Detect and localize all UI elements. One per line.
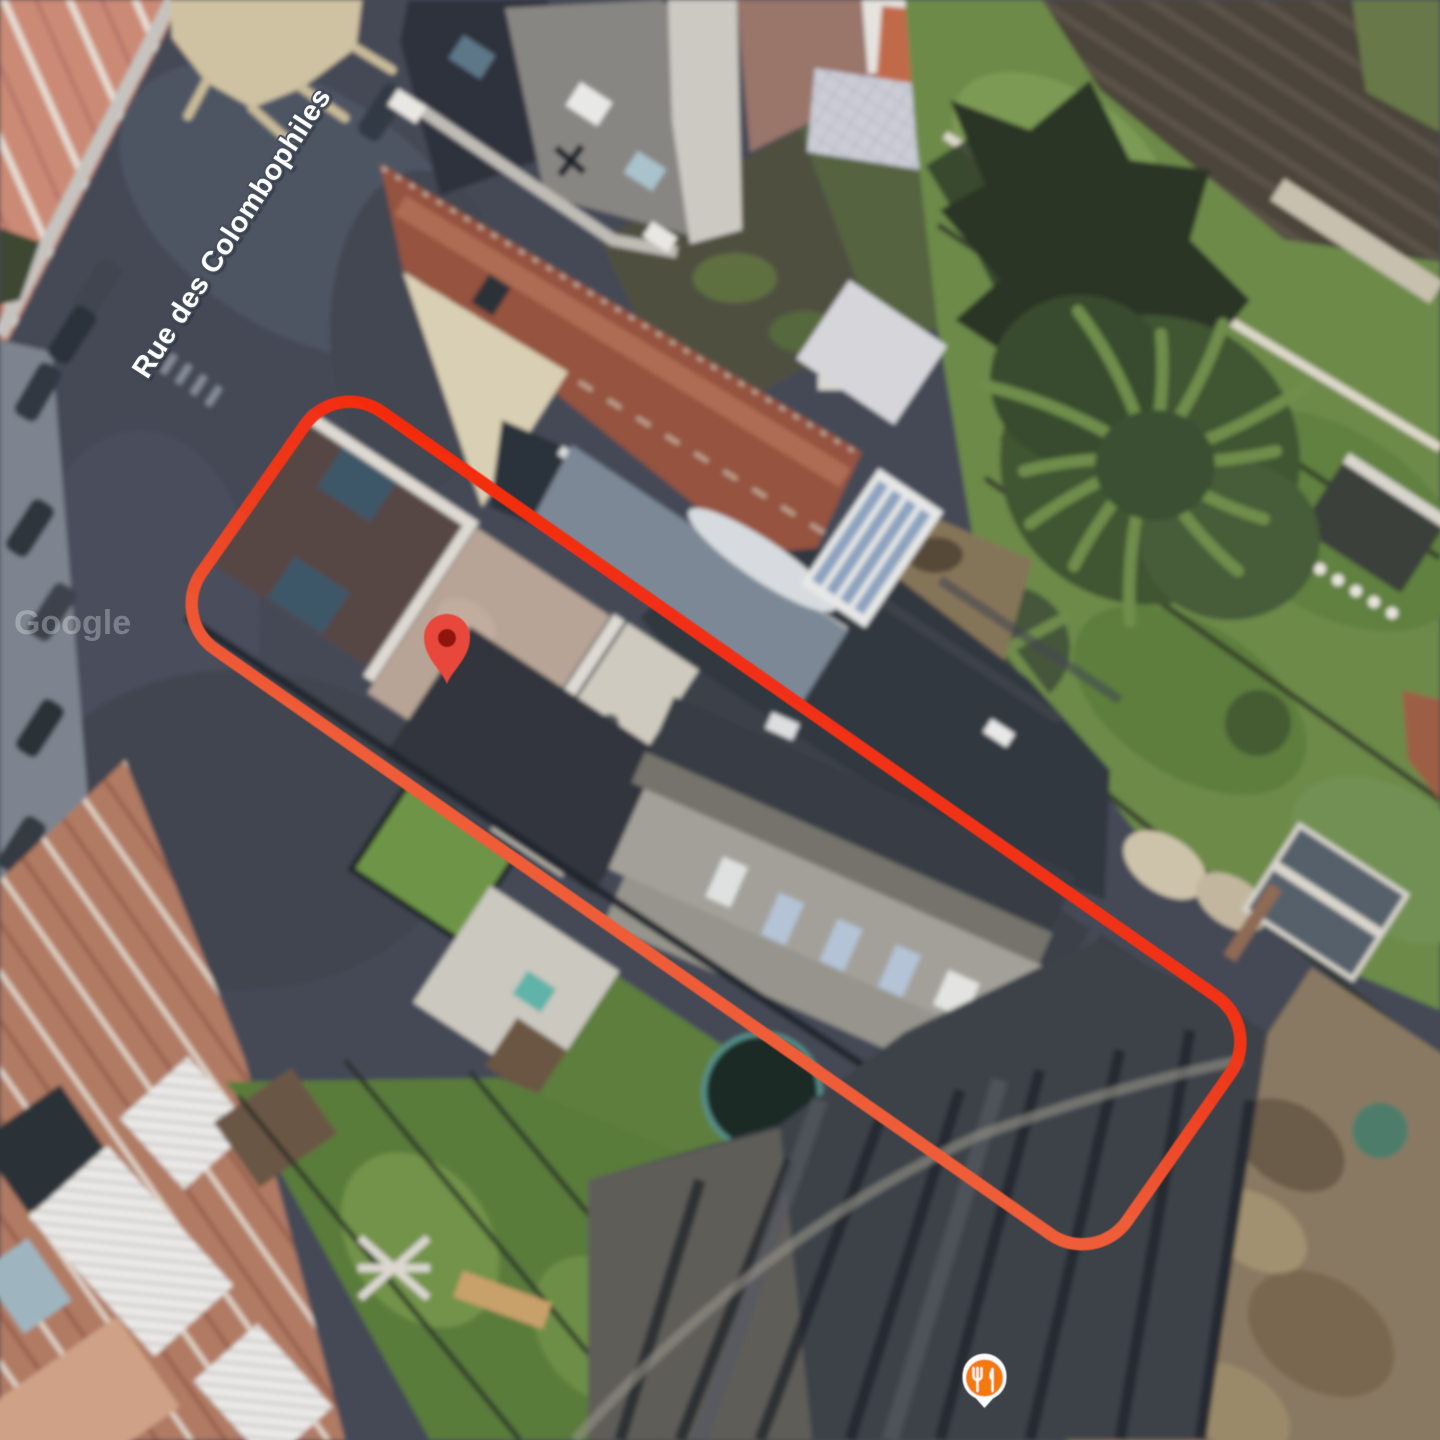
svg-text:Google: Google (14, 604, 131, 642)
